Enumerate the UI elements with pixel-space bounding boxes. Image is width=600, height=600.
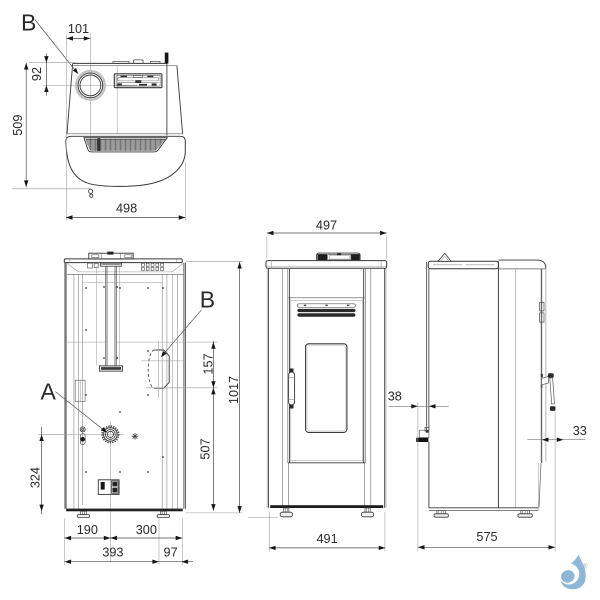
svg-text:575: 575: [476, 530, 497, 544]
svg-text:393: 393: [102, 546, 123, 560]
svg-text:190: 190: [77, 523, 98, 537]
svg-text:491: 491: [317, 532, 338, 546]
svg-text:101: 101: [68, 22, 89, 36]
svg-text:92: 92: [30, 67, 44, 81]
svg-text:1017: 1017: [227, 376, 241, 404]
svg-text:97: 97: [164, 546, 178, 560]
svg-text:A: A: [41, 378, 57, 404]
svg-text:324: 324: [28, 467, 42, 488]
svg-text:B: B: [21, 10, 36, 36]
svg-text:300: 300: [136, 523, 157, 537]
svg-text:157: 157: [202, 353, 216, 374]
svg-text:497: 497: [316, 218, 337, 232]
svg-text:B: B: [200, 287, 215, 313]
svg-text:33: 33: [573, 424, 587, 438]
svg-text:®: ®: [583, 563, 588, 570]
svg-text:498: 498: [116, 202, 137, 216]
svg-text:507: 507: [198, 438, 212, 459]
svg-text:509: 509: [11, 115, 25, 136]
svg-text:38: 38: [388, 390, 402, 404]
